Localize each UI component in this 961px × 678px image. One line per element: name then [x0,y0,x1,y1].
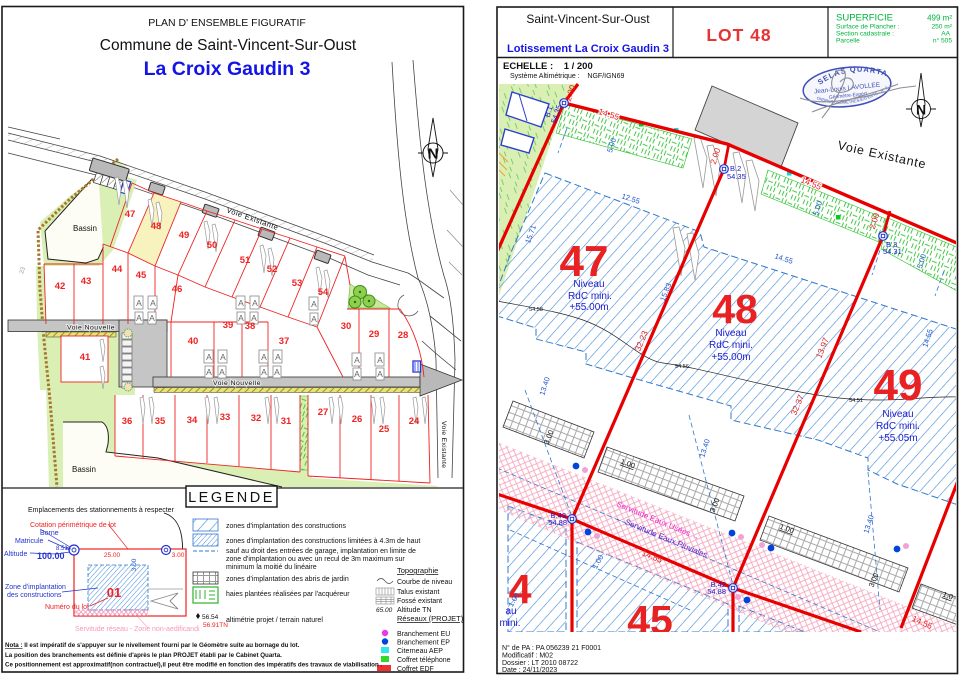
svg-text:44: 44 [112,264,123,275]
svg-text:25.00: 25.00 [104,552,121,559]
svg-text:Numéro du lot: Numéro du lot [45,604,89,611]
svg-text:zones d'implantation des abris: zones d'implantation des abris de jardin [226,576,349,583]
svg-text:N° de PA : PA 056239 21 F0001: N° de PA : PA 056239 21 F0001 [502,644,601,652]
svg-text:Bassin: Bassin [72,465,96,474]
svg-text:A: A [206,367,212,377]
svg-text:n° 505: n° 505 [933,37,952,45]
svg-text:altimétrie projet / terrain na: altimétrie projet / terrain naturel [226,617,323,624]
svg-text:54: 54 [318,287,329,298]
svg-text:28: 28 [398,330,409,341]
svg-text:AA: AA [941,31,950,38]
svg-text:Coffret téléphone: Coffret téléphone [397,657,451,664]
svg-text:32: 32 [251,413,262,424]
svg-text:56.54: 56.54 [202,614,219,621]
svg-text:36: 36 [122,416,133,427]
svg-text:54.35: 54.35 [727,172,746,181]
svg-text:zone d'implantation ou avec un: zone d'implantation ou avec un recul de … [226,556,405,563]
svg-text:Branchement EP: Branchement EP [397,640,450,647]
svg-text:65.00: 65.00 [376,607,393,614]
svg-text:zones d'implantation des const: zones d'implantation des constructions [226,523,347,530]
svg-text:Citerneau AEP: Citerneau AEP [397,648,443,655]
svg-text:PLAN D' ENSEMBLE FIGURATIF: PLAN D' ENSEMBLE FIGURATIF [148,17,306,29]
svg-text:minimum la moitié du linéaire: minimum la moitié du linéaire [226,564,317,571]
svg-text:zones d'implantation des const: zones d'implantation des constructions l… [226,538,420,545]
svg-text:Date : 24/11/2023: Date : 24/11/2023 [502,667,557,674]
svg-text:49: 49 [874,361,923,410]
svg-text:A: A [238,313,244,323]
svg-text:Ce positionnement est approxim: Ce positionnement est approximatif(non c… [5,662,382,669]
svg-text:Niveau: Niveau [882,409,913,420]
svg-text:+55.05m: +55.05m [878,433,917,444]
svg-text:+55.00m: +55.00m [569,302,608,313]
svg-text:54.51: 54.51 [849,398,863,404]
svg-text:haies plantées réalisées par l: haies plantées réalisées par l'acquéreur [226,591,350,598]
svg-text:Emplacements des stationnement: Emplacements des stationnements à respec… [28,507,175,514]
svg-text:Voie Nouvelle: Voie Nouvelle [67,325,115,332]
svg-text:Nota : Il est impératif de s'a: Nota : Il est impératif de s'appuyer sur… [5,642,300,649]
svg-text:A: A [275,352,281,362]
svg-text:La position des branchements e: La position des branchements est définie… [5,652,282,659]
svg-text:52: 52 [267,264,278,275]
svg-text:01: 01 [107,585,121,600]
svg-text:des constructions: des constructions [7,592,62,599]
svg-text:sauf au droit des entrées de g: sauf au droit des entrées de garage, imp… [226,548,416,555]
svg-text:Lotissement La Croix Gaudin 3: Lotissement La Croix Gaudin 3 [507,43,669,55]
svg-text:250 m²: 250 m² [931,24,952,31]
svg-text:mini.: mini. [499,618,520,629]
svg-text:30: 30 [341,321,352,332]
svg-text:A: A [261,352,267,362]
svg-text:40: 40 [188,336,199,347]
svg-text:45: 45 [136,270,147,281]
svg-text:Cotation périmétrique de lot: Cotation périmétrique de lot [30,522,116,529]
svg-text:54.88: 54.88 [548,518,567,527]
svg-text:54.58: 54.58 [529,307,543,313]
svg-text:27: 27 [318,407,329,418]
svg-text:Topographie: Topographie [397,566,438,575]
svg-text:33: 33 [220,412,231,423]
svg-text:A: A [274,367,280,377]
svg-text:LOT 48: LOT 48 [706,25,771,45]
svg-text:Réseaux (PROJET): Réseaux (PROJET) [397,614,464,623]
svg-text:A: A [311,314,317,324]
svg-text:Branchement EU: Branchement EU [397,631,450,638]
svg-text:Zone d'implantation: Zone d'implantation [5,584,66,591]
svg-text:Dossier : LT 2010 08722: Dossier : LT 2010 08722 [502,660,578,667]
svg-text:54.56: 54.56 [675,364,689,370]
svg-text:A: A [261,367,267,377]
svg-text:499 m²: 499 m² [927,14,952,23]
svg-text:+55.00m: +55.00m [711,352,750,363]
svg-text:A: A [136,298,142,308]
svg-text:48: 48 [151,221,162,232]
svg-text:SUPERFICIE: SUPERFICIE [836,13,893,24]
svg-text:Bassin: Bassin [73,224,97,233]
svg-text:54.31: 54.31 [883,247,902,256]
svg-text:100.00: 100.00 [37,551,65,561]
svg-text:37: 37 [279,336,290,347]
svg-text:A: A [206,352,212,362]
svg-text:47: 47 [125,209,136,220]
svg-text:Fossé existant: Fossé existant [397,598,442,605]
svg-text:48: 48 [712,286,758,332]
svg-text:53: 53 [292,278,303,289]
svg-text:Niveau: Niveau [715,328,746,339]
svg-text:A: A [220,352,226,362]
svg-text:3.00: 3.00 [172,552,185,559]
svg-text:RdC mini.: RdC mini. [568,291,612,302]
svg-text:24: 24 [409,416,420,427]
svg-text:LEGENDE: LEGENDE [188,490,275,506]
svg-text:51: 51 [240,255,251,266]
svg-text:41: 41 [80,352,91,363]
svg-text:Courbe de niveau: Courbe de niveau [397,579,452,586]
svg-text:N: N [428,146,439,163]
svg-text:A: A [311,299,317,309]
svg-text:31: 31 [281,416,292,427]
svg-text:Altitude: Altitude [4,551,27,558]
svg-text:Saint-Vincent-Sur-Oust: Saint-Vincent-Sur-Oust [526,12,650,26]
svg-text:Matricule: Matricule [15,538,44,545]
svg-text:Parcelle: Parcelle [836,38,860,45]
svg-text:Niveau: Niveau [573,279,604,290]
svg-text:26: 26 [352,414,363,425]
svg-text:43: 43 [81,276,92,287]
svg-text:A: A [238,298,244,308]
svg-text:A: A [377,369,383,379]
svg-text:35: 35 [155,416,166,427]
svg-text:Commune de Saint-Vincent-Sur-O: Commune de Saint-Vincent-Sur-Oust [100,37,357,54]
svg-text:A: A [149,313,155,323]
svg-text:46: 46 [172,284,183,295]
svg-text:Servitude réseau - Zone non-ae: Servitude réseau - Zone non-aedificandi [75,626,200,633]
svg-text:29: 29 [369,329,380,340]
svg-text:RdC mini.: RdC mini. [876,421,920,432]
svg-text:La Croix Gaudin 3: La Croix Gaudin 3 [144,58,311,80]
svg-text:Coffret EDF: Coffret EDF [397,666,434,673]
svg-text:ECHELLE : 1 / 200: ECHELLE : 1 / 200 [503,61,593,72]
svg-text:49: 49 [179,230,190,241]
svg-text:39: 39 [223,320,234,331]
svg-text:34: 34 [187,415,198,426]
svg-text:N: N [916,102,926,118]
svg-text:Système Altimétrique : NGF/: Système Altimétrique : NGF/IGN69 [510,73,624,80]
svg-text:A: A [354,355,360,365]
svg-text:A: A [136,313,142,323]
svg-text:Section cadastrale :: Section cadastrale : [836,31,894,38]
svg-text:A: A [377,355,383,365]
svg-text:Altitude TN: Altitude TN [397,607,432,614]
svg-text:A: A [354,369,360,379]
svg-text:A: A [219,367,225,377]
svg-text:RdC mini.: RdC mini. [709,340,753,351]
svg-text:Voie Nouvelle: Voie Nouvelle [213,380,261,387]
svg-text:Talus existant: Talus existant [397,589,439,596]
svg-text:42: 42 [55,281,66,292]
svg-text:Modificatif : M02: Modificatif : M02 [502,653,553,660]
svg-text:56.91TN: 56.91TN [203,622,228,629]
svg-text:3.00: 3.00 [131,558,138,571]
svg-text:A: A [252,298,258,308]
svg-text:38: 38 [245,321,256,332]
svg-text:A: A [150,298,156,308]
svg-text:Surface de Plancher :: Surface de Plancher : [836,24,900,31]
svg-text:25: 25 [379,424,390,435]
svg-text:54.88: 54.88 [707,587,726,596]
svg-text:Voie Existante: Voie Existante [440,421,447,468]
svg-text:50: 50 [207,240,218,251]
